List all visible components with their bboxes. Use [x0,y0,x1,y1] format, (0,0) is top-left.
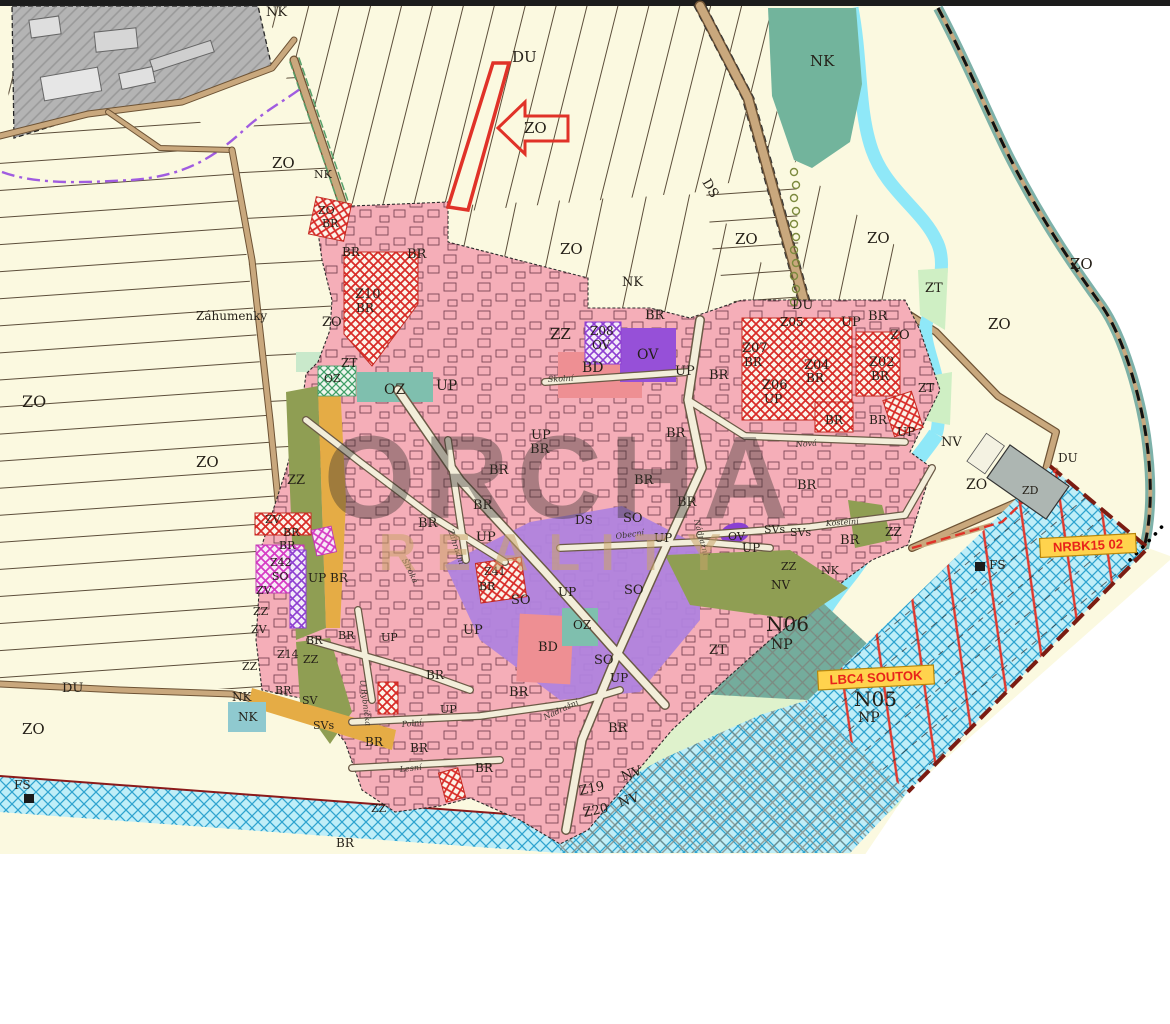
zone-label: Z05 [780,315,804,329]
zone-label: BR [709,368,730,383]
zone-label: ZV [256,584,273,597]
zone-label: Z14 [277,648,299,661]
zone-label: BR [330,571,349,585]
zone-label: NK [821,564,840,577]
zone-label: FS [14,778,31,792]
zone-label: NK [232,690,253,704]
zone-label: OV [637,347,659,363]
zone-label: ZZ [781,560,797,573]
zone-label: SO [272,570,289,583]
zone-label: UP [610,671,628,685]
zone-label: Z42 [270,556,292,569]
zone-label: BR [871,369,890,383]
zone-label: Z08 [590,324,614,338]
zone-label: DU [1058,451,1078,465]
zone-label: SO [594,653,614,668]
zone-label: BR [475,761,494,775]
zone-label: BR [840,533,861,548]
zone-label: NK [622,275,643,290]
zone-label: N05 [854,687,897,711]
zone-label: ZT [918,381,934,395]
zone-label: NV [941,435,962,450]
zone-label: ZO [22,720,45,738]
zone-label: Z10 [355,287,381,302]
zone-label: BR [797,478,818,493]
zone-label: ZZ [253,605,269,618]
zone-label: ZT [925,281,943,296]
zone-label: ZZ [885,525,902,539]
zone-label: ZO [196,453,219,471]
zone-label: ZO [560,240,583,258]
zone-label: ZT [341,356,357,370]
zone-label: BR [306,634,323,647]
zone-label: ZD [1022,484,1039,497]
zone-label: SO [624,583,644,598]
zone-label: BR [338,629,355,642]
zone-label: ZT [709,643,727,658]
zone-label: BR [806,371,825,385]
zone-label: NK [266,5,287,20]
street-label: Školní [548,374,575,384]
zone-label: UP [675,364,695,379]
zone-label: BR [336,836,355,850]
zone-label: OZ [384,382,405,398]
zone-label: BR [279,539,296,552]
zone-label: BD [582,360,604,376]
zone-label: ZZ [371,802,387,815]
zone-label: N06 [766,612,809,636]
zone-label: BR [509,685,530,700]
street-label: Nová [795,439,818,450]
zone-label: NK [314,168,333,181]
zone-label: BR [869,413,888,427]
zone-label: UP [440,703,457,716]
watermark: ORCHA REALITY [324,412,797,582]
zone-label: BR [744,355,763,369]
zone-label: ZZ [303,653,319,666]
zone-label: DU [62,681,83,696]
zone-label: BR [356,301,375,315]
zone-label: ZO [524,119,547,137]
top-edge-bar [0,0,1170,6]
zone-label: FS [989,558,1006,572]
zone-label: ZO [966,477,987,493]
zone-label: Z07 [742,341,768,356]
zone-label: UP [436,378,457,394]
zone-label: BR [342,245,361,259]
zone-label: ZV [265,513,282,526]
zone-label: OV [592,338,611,352]
zone-label: NK [810,52,835,70]
zone-label: BR [825,413,844,427]
zone-label: ZO [22,392,46,411]
zone-label: BR [645,308,666,323]
zone-label: SO [511,593,531,608]
zone-label: BR [868,309,889,324]
zoning-map-page: NKDUNKZONKZODSZOBRBRBRZOZOZONKZOZOZTZáhu… [0,0,1170,1024]
zone-label: ZZ [550,325,571,343]
zone-label: BR [608,721,629,736]
zone-label: UP [841,315,861,330]
zone-label: ZO [867,229,890,247]
zone-label: UP [308,571,326,585]
zone-label: SVs [313,719,334,732]
fs-marker-east [975,562,985,571]
zone-label: NK [238,710,259,724]
zone-label: UP [897,425,915,439]
zone-label: ZZ [242,660,258,673]
zone-label: UP [558,585,576,599]
zone-label: ZO [318,204,335,217]
watermark-line2: REALITY [379,524,741,582]
zone-label: BR [275,684,292,697]
zone-label: DU [512,48,537,66]
zone-label: ZZ [287,473,305,488]
zone-label: OZ [573,618,591,632]
zone-label: BR [426,668,445,682]
zone-label: NV [771,578,791,592]
zone-label: ZO [890,328,910,343]
zone-label: NP [858,710,880,726]
zone-label: Z02 [869,355,895,370]
zone-label: ZV [251,623,268,636]
zone-label: ZO [322,315,342,330]
zone-label: OZ [324,372,341,385]
zone-label: NP [771,637,793,653]
fs-marker-west [24,794,34,803]
zone-label: ZO [735,230,758,248]
outside-area-bottom [0,854,1170,1024]
zone-label: BR [410,741,429,755]
zone-label: UP [764,392,782,406]
zone-label: SV [302,694,319,707]
zone-label: UP [463,623,483,638]
zone-label: ZO [988,315,1011,333]
zone-label: DU [792,298,813,313]
zone-label: UP [381,631,398,644]
zone-label: Z06 [762,378,788,393]
zone-label: BR [407,247,428,262]
zone-label: BD [538,640,558,655]
zone-label: Záhumenky [196,309,267,323]
zone-label: BR [322,217,339,230]
zone-label: BR [283,526,300,539]
map-canvas: NKDUNKZONKZODSZOBRBRBRZOZOZONKZOZOZTZáhu… [0,0,1170,1024]
zone-label: ZO [1070,255,1093,273]
zone-label: BR [365,735,384,749]
zone-label: ZO [272,154,295,172]
